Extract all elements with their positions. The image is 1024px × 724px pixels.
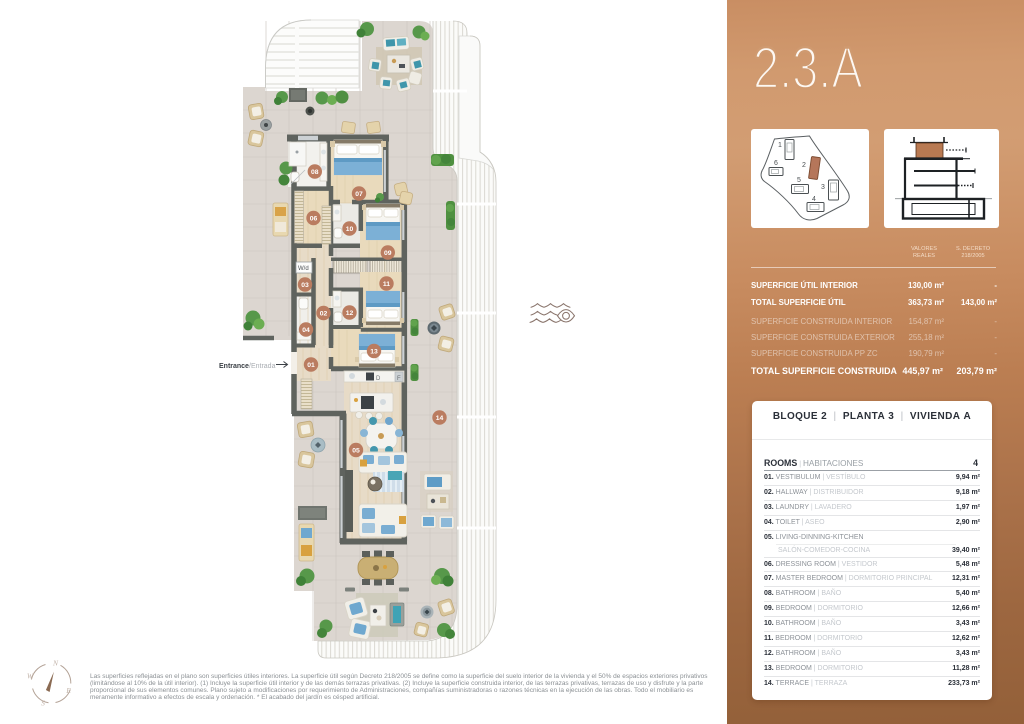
svg-text:Entrance: Entrance bbox=[219, 363, 249, 370]
svg-text:07: 07 bbox=[355, 191, 363, 198]
svg-text:D: D bbox=[376, 376, 381, 382]
svg-text:10: 10 bbox=[346, 226, 354, 233]
svg-text:05: 05 bbox=[352, 448, 360, 455]
svg-text:S: S bbox=[41, 699, 45, 708]
svg-text:11: 11 bbox=[383, 281, 390, 288]
svg-text:12: 12 bbox=[346, 310, 354, 317]
svg-text:01: 01 bbox=[307, 362, 315, 369]
svg-text:W/d: W/d bbox=[298, 266, 309, 272]
svg-text:1: 1 bbox=[778, 142, 782, 149]
svg-text:04: 04 bbox=[302, 327, 310, 334]
svg-text:03: 03 bbox=[301, 282, 309, 289]
svg-text:3: 3 bbox=[821, 184, 825, 191]
svg-text:09: 09 bbox=[384, 250, 392, 257]
svg-text:08: 08 bbox=[311, 169, 319, 176]
svg-text:2: 2 bbox=[802, 162, 806, 169]
svg-text:N: N bbox=[52, 659, 59, 668]
svg-text:E: E bbox=[65, 686, 71, 695]
svg-text:4: 4 bbox=[812, 196, 816, 203]
svg-text:5: 5 bbox=[797, 177, 801, 184]
svg-text:6: 6 bbox=[774, 160, 778, 167]
svg-text:13: 13 bbox=[370, 349, 378, 356]
svg-text:14: 14 bbox=[436, 415, 444, 422]
svg-text:06: 06 bbox=[310, 216, 318, 223]
svg-text:F: F bbox=[397, 376, 401, 382]
svg-text:W: W bbox=[27, 672, 34, 681]
svg-text:/Entrada: /Entrada bbox=[249, 363, 276, 370]
svg-text:02: 02 bbox=[320, 311, 328, 318]
